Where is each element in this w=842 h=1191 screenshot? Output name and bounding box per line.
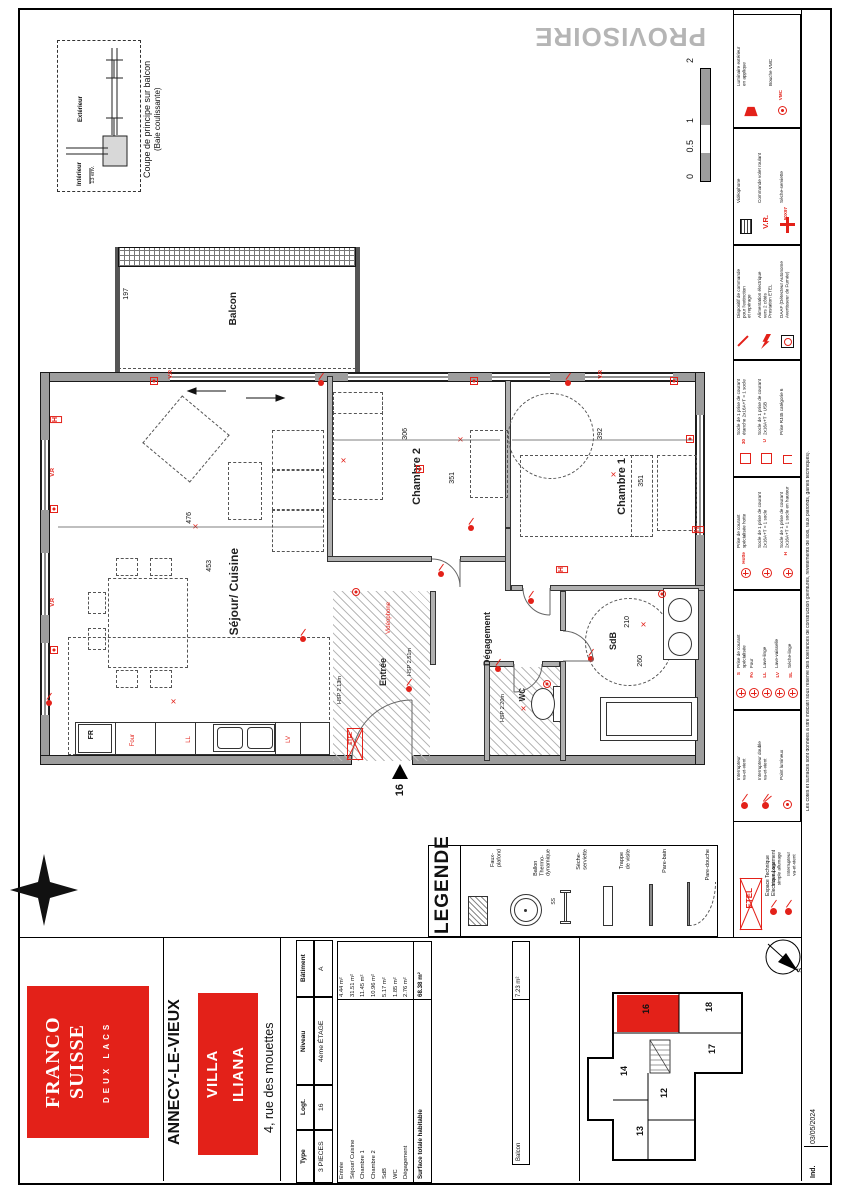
room-label-wc: WC bbox=[518, 688, 527, 701]
dimension-label: HSP 2.20m bbox=[500, 694, 506, 722]
etel-switch-label: Interrupteur simple allumage bbox=[771, 852, 782, 885]
roller-shutter-mark: V.R bbox=[50, 598, 56, 607]
legend-item-label: Pare-bain bbox=[662, 849, 668, 873]
legend-symbol-rj45 bbox=[783, 455, 792, 464]
footnote-black: Les cotes et surfaces sont données à tit… bbox=[806, 16, 818, 811]
detail-label-exterior: Extérieur bbox=[78, 96, 85, 122]
furniture-dashed bbox=[333, 392, 383, 414]
watermark-provisoire: PROVISOIRE bbox=[548, 14, 706, 52]
residence-line1: VILLA bbox=[204, 993, 221, 1155]
info-header: Niveau bbox=[300, 999, 307, 1083]
legend-symbol-daaf bbox=[781, 335, 794, 348]
washbasin bbox=[668, 632, 692, 656]
wall bbox=[412, 755, 705, 765]
roller-shutter-mark: V.R bbox=[50, 468, 56, 477]
dimension-label: 306 bbox=[402, 428, 410, 440]
divider-keyplan-cell bbox=[579, 937, 580, 1181]
red-annotation-label: Four bbox=[130, 734, 137, 746]
right-legend-label: Bouche VMC bbox=[768, 18, 798, 86]
furniture-dashed bbox=[228, 462, 262, 520]
area-room-label: Chambre 2 bbox=[371, 1003, 378, 1179]
furniture-dashed bbox=[88, 592, 106, 614]
area-room-label: Entrée bbox=[339, 1003, 346, 1179]
dimension-label: 351 bbox=[638, 475, 646, 487]
switch-icon bbox=[495, 666, 501, 672]
legend-symbol-outlet-box bbox=[740, 453, 751, 464]
detail-caption-2: (Baie coulissante) bbox=[153, 44, 162, 194]
room-label-chambre2: Chambre 2 bbox=[411, 448, 424, 505]
legend-symbol-switch bbox=[762, 802, 769, 809]
switch-icon bbox=[46, 700, 52, 706]
ceiling-light-icon: × bbox=[455, 433, 467, 444]
right-legend-label: Luminaire extérieur en applique bbox=[736, 18, 766, 86]
room-label-sdb: SdB bbox=[608, 632, 618, 650]
right-legend-label: Point lumineux bbox=[779, 714, 798, 780]
right-legend-label: Lave-linge bbox=[762, 594, 773, 668]
area-room-label: Séjour/ Cuisine bbox=[350, 1003, 357, 1179]
partition-wall bbox=[560, 591, 566, 631]
switch-icon bbox=[468, 525, 474, 531]
right-legend-label: Four bbox=[749, 594, 760, 668]
legend-symbol-seche-serviette bbox=[560, 921, 571, 924]
compass-letter: S bbox=[797, 968, 805, 973]
right-legend-tag: U bbox=[762, 439, 767, 442]
legend-symbol-ballon bbox=[524, 909, 527, 912]
legend-item-label: Faux- plafond bbox=[490, 849, 503, 867]
ceiling-light-icon: × bbox=[518, 702, 530, 713]
furniture-dashed bbox=[272, 510, 324, 552]
furniture-dashed bbox=[116, 558, 138, 576]
partition-wall bbox=[430, 591, 436, 665]
vmc-vent-icon bbox=[543, 680, 551, 688]
turning-circle bbox=[585, 598, 673, 686]
balcony-grating bbox=[118, 247, 356, 267]
counter-divider bbox=[195, 722, 196, 755]
right-legend-tag: 50X97 bbox=[783, 207, 788, 220]
height-outlet-mark: H bbox=[556, 566, 568, 573]
info-header: Bâtiment bbox=[300, 942, 307, 995]
ceiling-light-icon: × bbox=[190, 520, 202, 531]
vmc-vent-icon bbox=[658, 590, 666, 598]
right-legend-tag: LV bbox=[775, 672, 780, 678]
floorplan-sheet: PROVISOIRE 2 1 0.5 0 Extérieur Intérieur… bbox=[0, 0, 842, 1191]
switch-icon bbox=[438, 571, 444, 577]
area-room-value: 2.76 m² bbox=[403, 944, 410, 997]
legend-title: LEGENDE bbox=[432, 848, 454, 934]
area-room-label: WC bbox=[393, 1003, 400, 1179]
roller-shutter-mark: V.R bbox=[598, 370, 604, 379]
area-room-value: 1.85 m² bbox=[393, 944, 400, 997]
legend-symbol-radiator bbox=[780, 223, 795, 226]
furniture-dashed bbox=[272, 430, 324, 470]
room-label-degagement: Dégagement bbox=[482, 612, 492, 666]
area-room-value: 31.51 m² bbox=[350, 944, 357, 997]
scale-label-05: 0.5 bbox=[685, 140, 695, 153]
legend-item-label: Pare-douche bbox=[705, 849, 711, 881]
legend-item-label: Ballon Thermo- dynamique bbox=[533, 849, 552, 876]
roller-shutter-mark: V.R bbox=[168, 370, 174, 379]
room-label-sejour: Séjour/ Cuisine bbox=[228, 548, 242, 635]
washbasin bbox=[668, 598, 692, 622]
sink-basin bbox=[217, 727, 243, 749]
residence-line2: ILIANA bbox=[230, 993, 247, 1155]
partition-wall bbox=[460, 556, 511, 562]
furniture-dashed bbox=[631, 455, 653, 537]
ceiling-light-icon: × bbox=[638, 618, 650, 629]
right-legend-tag: S bbox=[736, 672, 741, 675]
red-annotation-label: LV bbox=[286, 736, 293, 743]
legend-symbol-trappe bbox=[603, 886, 613, 926]
right-legend-label: Prise de courant spécialisée hotte bbox=[736, 481, 755, 548]
scale-label-0: 0 bbox=[685, 174, 695, 179]
right-legend-label: Interrupteur va-et-vient bbox=[736, 714, 755, 780]
right-legend-tag: Fo bbox=[749, 672, 754, 678]
counter-divider bbox=[300, 722, 301, 755]
furniture-dashed bbox=[150, 558, 172, 576]
turning-circle bbox=[508, 393, 594, 479]
ceiling-light-icon: × bbox=[338, 454, 350, 465]
key-plan-unit: 13 bbox=[635, 1126, 645, 1136]
switch-icon bbox=[565, 380, 571, 386]
dimension-label: 197 bbox=[123, 288, 131, 300]
height-outlet-mark: H bbox=[50, 416, 62, 423]
areas-total-divider bbox=[413, 941, 414, 1183]
divider-address-cell bbox=[280, 937, 281, 1181]
right-legend-tag: LL bbox=[762, 672, 767, 678]
switch-icon bbox=[318, 380, 324, 386]
partition-wall bbox=[511, 585, 523, 591]
balcony-value: 7.23 m² bbox=[516, 944, 523, 997]
furniture-dashed bbox=[470, 430, 508, 498]
area-total-value: 68.38 m² bbox=[417, 944, 424, 997]
counter-divider bbox=[155, 722, 156, 755]
window bbox=[41, 440, 49, 510]
right-legend-label: Commande volet roulant bbox=[757, 132, 776, 203]
logo-line1: FRANCO bbox=[42, 986, 65, 1138]
info-value: 3 PIECES bbox=[318, 1132, 326, 1181]
area-room-value: 4.44 m² bbox=[339, 944, 346, 997]
right-legend-label: Prise RJ45 catégorie 6 bbox=[779, 364, 798, 435]
sink-basin bbox=[247, 727, 273, 749]
divider-date-ind bbox=[804, 1146, 828, 1147]
divider-logo-cell bbox=[163, 937, 164, 1181]
area-room-value: 11.45 m² bbox=[360, 944, 367, 997]
info-value: A bbox=[318, 942, 326, 995]
info-header: Logt. bbox=[300, 1087, 307, 1128]
furniture-dashed bbox=[272, 470, 324, 510]
detail-dim: 13 env. bbox=[90, 166, 96, 184]
right-legend-tag: 30 bbox=[741, 439, 746, 444]
revision-ind: Ind. bbox=[810, 1152, 818, 1178]
right-legend-label: Sèche-linge bbox=[787, 594, 798, 668]
room-label-balcon: Balcon bbox=[228, 292, 240, 325]
right-legend-label: Prise de courant spécialisée bbox=[736, 594, 747, 668]
divider-footnote-strip bbox=[801, 8, 802, 1181]
legend-symbol-hatch bbox=[468, 896, 488, 926]
info-header: Type bbox=[300, 1132, 307, 1181]
info-value: 16 bbox=[318, 1087, 326, 1128]
fixture bbox=[606, 702, 692, 736]
switch-icon bbox=[300, 636, 306, 642]
area-room-label: Dégagement bbox=[403, 1003, 410, 1179]
area-room-label: Chambre 1 bbox=[360, 1003, 367, 1179]
legend-symbol-vmc bbox=[778, 106, 787, 115]
legend-item-label: Sèche- serviette bbox=[576, 849, 589, 870]
right-legend-label: Lave-vaisselle bbox=[774, 594, 785, 668]
detail-label-interior: Intérieur bbox=[77, 162, 84, 186]
legend-symbol-outlet bbox=[788, 688, 798, 698]
dimension-label: HSP 2.13m bbox=[337, 676, 343, 704]
ceiling-light-icon: × bbox=[608, 468, 620, 479]
window bbox=[348, 373, 448, 381]
vmc-vent-icon bbox=[352, 588, 360, 596]
legend-item-label: Trappe de visite bbox=[619, 849, 632, 869]
window bbox=[170, 373, 315, 381]
dimension-label: 210 bbox=[624, 616, 632, 628]
dimension-label: 392 bbox=[597, 428, 605, 440]
revision-date: 03/05/2024 bbox=[810, 1096, 818, 1144]
switch-icon bbox=[588, 656, 594, 662]
right-legend-label: Interrupteur double va-et-vient bbox=[757, 714, 776, 780]
right-legend-label: Socle de 1 prise de courant 2x16A+T = 1 … bbox=[757, 481, 776, 548]
right-legend-label: DAAF (Détecteur Autonome Avertisseur de … bbox=[779, 249, 798, 318]
electrical-outlet-icon bbox=[470, 377, 478, 385]
right-legend-label: Sèche-serviette bbox=[779, 132, 798, 203]
appliance-label: FR bbox=[88, 730, 96, 739]
right-legend-tag: V.R. bbox=[762, 215, 771, 229]
legend-item-tag: SS bbox=[552, 898, 558, 905]
red-annotation-label: Vidéophone bbox=[386, 602, 393, 634]
legend-title-divider bbox=[460, 845, 461, 937]
key-plan-unit: 12 bbox=[659, 1088, 669, 1098]
switch-icon bbox=[528, 598, 534, 604]
right-legend-label: Dispositif de commande pour l'extinction… bbox=[736, 249, 755, 318]
etel-box-label: ETEL bbox=[745, 888, 754, 908]
legend-symbol-videophone bbox=[740, 219, 752, 234]
right-legend-label: Socle de 1 prise de courant étanche 2x16… bbox=[736, 364, 755, 435]
partition-wall bbox=[505, 528, 511, 591]
red-annotation-label: LL bbox=[186, 736, 193, 743]
footnote-red-nb: NB PLAN DE VENTE : Le présent plan est c… bbox=[806, 1183, 826, 1191]
logo-line2: SUISSE bbox=[66, 986, 89, 1138]
electrical-outlet-icon bbox=[50, 505, 58, 513]
detail-caption-1: Coupe de principe sur balcon bbox=[142, 44, 152, 194]
wall bbox=[40, 755, 352, 765]
legend-symbol-outlet bbox=[741, 568, 751, 578]
window bbox=[41, 553, 49, 615]
counter-divider bbox=[275, 722, 276, 755]
room-label-entree: Entrée bbox=[378, 658, 388, 686]
divider-titleblock-top bbox=[18, 937, 802, 938]
area-room-value: 5.17 m² bbox=[382, 944, 389, 997]
legend-symbol-switch bbox=[741, 802, 748, 809]
area-room-label: SdB bbox=[382, 1003, 389, 1179]
project-address: 4, rue des mouettes bbox=[262, 990, 276, 1165]
switch-icon bbox=[406, 686, 412, 692]
key-plan-unit: 17 bbox=[707, 1044, 717, 1054]
electrical-outlet-icon bbox=[670, 377, 678, 385]
electrical-outlet-icon bbox=[686, 435, 694, 443]
window bbox=[696, 415, 704, 535]
info-value: 4ème ÉTAGE bbox=[318, 999, 326, 1083]
right-legend-label: Socle de 1 prise de courant 2x16A+T = 1 … bbox=[779, 481, 798, 548]
switch-icon bbox=[770, 908, 777, 915]
toilet bbox=[531, 688, 555, 720]
legend-symbol-seche-serviette bbox=[564, 890, 567, 924]
balcony-label: Balcon bbox=[516, 1003, 523, 1161]
logo-sub: DEUX LACS bbox=[102, 986, 111, 1138]
right-legend-tag: H bbox=[783, 552, 788, 555]
furniture-dashed bbox=[657, 455, 697, 531]
right-legend-label: Vidéophone bbox=[736, 132, 755, 203]
key-plan-unit-current: 16 bbox=[641, 1004, 651, 1014]
legend-symbol-outlet bbox=[762, 568, 772, 578]
legend-symbol-outlet-box bbox=[761, 453, 772, 464]
area-room-value: 10.96 m² bbox=[371, 944, 378, 997]
right-legend-label: Socle de 1 prise de courant 2x16A+T + US… bbox=[757, 364, 776, 435]
key-plan-unit: 18 bbox=[704, 1002, 714, 1012]
area-total-label: Surface totale habitable bbox=[417, 1003, 424, 1179]
legend-symbol-pare-bain bbox=[649, 884, 653, 926]
electrical-outlet-icon bbox=[150, 377, 158, 385]
entrance-lot-number: 16 bbox=[394, 784, 407, 796]
scale-label-2: 2 bbox=[685, 58, 695, 63]
etel-plan-label: ETEL bbox=[349, 732, 355, 745]
right-legend-tag: VMC bbox=[778, 90, 783, 100]
key-plan-unit: 14 bbox=[619, 1066, 629, 1076]
ceiling-light-icon: × bbox=[168, 695, 180, 706]
dimension-label: HSP 2.51m bbox=[407, 648, 413, 676]
electrical-outlet-icon bbox=[50, 646, 58, 654]
project-city: ANNECY-LE-VIEUX bbox=[166, 975, 184, 1170]
dimension-label: 351 bbox=[449, 472, 457, 484]
dimension-label: 453 bbox=[206, 560, 214, 572]
counter-divider bbox=[115, 722, 116, 755]
dimension-label: 260 bbox=[637, 655, 645, 667]
right-legend-label: Alimentation électrique vers 2 côtés Pre… bbox=[757, 249, 776, 318]
window bbox=[492, 373, 550, 381]
balcony-divider bbox=[512, 999, 530, 1000]
areas-divider bbox=[337, 999, 432, 1000]
height-outlet-mark: H bbox=[692, 526, 704, 533]
balcony-edge bbox=[118, 368, 356, 369]
right-legend-tag: SL bbox=[788, 672, 793, 678]
partition-wall bbox=[327, 556, 432, 562]
right-legend-tag: Hotte bbox=[741, 552, 746, 564]
etel-switch-label: Interrupteur va-et-vient bbox=[786, 852, 797, 876]
legend-symbol-outlet bbox=[775, 688, 785, 698]
switch-icon bbox=[785, 908, 792, 915]
legend-symbol-seche-serviette bbox=[560, 890, 571, 893]
room-label-chambre1: Chambre 1 bbox=[616, 458, 629, 515]
electrical-outlet-icon bbox=[416, 465, 424, 473]
scale-label-1: 1 bbox=[685, 118, 695, 123]
legend-symbol-outlet bbox=[762, 688, 772, 698]
